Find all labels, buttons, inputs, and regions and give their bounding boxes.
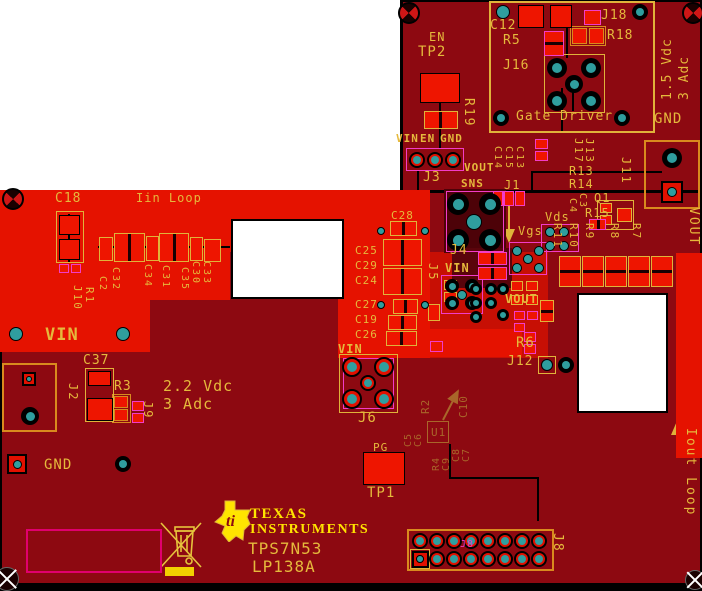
mounting-hole [398, 2, 420, 24]
silk-label: C28 [391, 210, 414, 221]
smd-pad [540, 300, 554, 322]
silk-label: VIN [445, 262, 470, 274]
silk-label: EN [420, 133, 435, 144]
via [116, 327, 130, 341]
through-hole-pad [581, 91, 601, 111]
through-hole-pad [531, 551, 547, 567]
c12-pad-b [550, 5, 572, 28]
through-hole-pad [409, 152, 425, 168]
through-hole-pad [514, 533, 530, 549]
silk-label: R10 [568, 223, 579, 249]
silk-label: J9 [142, 401, 154, 419]
mounting-hole [2, 188, 24, 210]
j10-pad-b [71, 264, 81, 273]
through-hole-pad [470, 297, 482, 309]
silk-label: C25 [355, 245, 378, 256]
pad-hole [379, 362, 389, 372]
silk-label: SNS [461, 178, 484, 189]
pad-hole [535, 537, 543, 545]
silk-label: J2 [67, 383, 79, 401]
c13-body [515, 191, 525, 206]
silk-label: VIN [396, 133, 419, 144]
cap-bank-5 [190, 237, 203, 261]
r3-pad-a [114, 396, 128, 408]
pcb-layout-screenshot: ti TEXAS INSTRUMENTS ENTP2R19VINENGNDJ3V… [0, 0, 702, 591]
r19-body [424, 111, 458, 129]
silk-label: C27 [355, 299, 378, 310]
pad-hole [485, 199, 496, 210]
pad-gap [128, 234, 131, 261]
via [377, 227, 385, 235]
silk-label: C31 [160, 265, 170, 289]
silk-label: J16 [503, 59, 529, 72]
silk-label: GND [44, 458, 72, 472]
pad-gap [401, 316, 404, 329]
silk-label: Vds [545, 211, 570, 223]
j13-body [535, 139, 548, 149]
pad-hole [119, 460, 127, 468]
c18-pad-a [59, 215, 80, 235]
silk-label: C33 [201, 261, 211, 285]
pad-gap [401, 269, 404, 294]
silk-label: Gate Driver [516, 110, 613, 123]
pad-gap [583, 270, 603, 273]
via [377, 301, 385, 309]
silk-label: R6 [516, 336, 535, 350]
through-hole-pad [445, 279, 459, 293]
pad-hole [450, 537, 458, 545]
silk-label: VIN [45, 327, 79, 344]
through-hole-pad [412, 533, 428, 549]
mounting-hole [685, 570, 702, 590]
silk-label: GND [654, 112, 682, 126]
keepout-white-left [231, 219, 344, 299]
c27-body [393, 299, 418, 314]
via [523, 254, 533, 264]
c19-body [388, 315, 417, 330]
through-hole-pad [514, 551, 530, 567]
silk-label: VOUT [505, 293, 538, 305]
through-hole-pad [429, 533, 445, 549]
pad-hole [518, 537, 526, 545]
silk-label: PG [373, 442, 388, 453]
j18-body [584, 10, 601, 25]
smd-pad [526, 281, 538, 291]
pad-hole [485, 235, 496, 246]
silk-label: C35 [179, 267, 189, 291]
silk-label: R9 [584, 223, 595, 240]
through-hole-pad [614, 110, 630, 126]
j10-pad-a [59, 264, 69, 273]
silk-label: J8 [551, 533, 564, 553]
pad-hole [484, 537, 492, 545]
mounting-hole [0, 567, 19, 591]
c18-pad-b [59, 239, 80, 260]
through-hole-pad [374, 357, 394, 377]
pad-hole [26, 412, 35, 421]
via [512, 246, 522, 256]
pad-hole [416, 537, 424, 545]
silk-label: TP1 [367, 486, 395, 500]
via [421, 301, 429, 309]
r7-body [651, 256, 673, 287]
square-pad [7, 454, 27, 474]
silk-label: C37 [83, 354, 109, 367]
pad-hole [433, 555, 441, 563]
c37-pad-a [88, 371, 111, 386]
pad-hole [416, 555, 424, 563]
through-hole-pad [470, 283, 482, 295]
through-hole-pad [463, 551, 479, 567]
pad-hole [473, 300, 479, 306]
via [512, 263, 522, 273]
pad-hole [500, 312, 506, 318]
silk-label: J6 [358, 411, 377, 425]
pad-gap [597, 220, 600, 229]
silk-label: VOUT [464, 162, 495, 173]
silk-label: J11 [620, 157, 632, 185]
silk-label: GND [440, 133, 463, 144]
pad-hole [488, 300, 494, 306]
pad-hole [467, 555, 475, 563]
pad-hole [484, 555, 492, 563]
pad-hole [497, 114, 505, 122]
silk-label: C13 [514, 146, 524, 170]
through-hole-pad [479, 229, 501, 251]
silk-label: R15 [585, 207, 610, 219]
pad-hole [501, 555, 509, 563]
pad-hole [667, 153, 677, 163]
silk-label: C6 [414, 433, 424, 447]
silk-label: C7 [462, 448, 472, 462]
pad-hole [473, 314, 479, 320]
q1-pad-c [617, 208, 632, 222]
through-hole-pad [470, 311, 482, 323]
through-hole-pad [374, 389, 394, 409]
silk-label: C34 [142, 264, 152, 288]
through-hole-pad [427, 152, 443, 168]
silk-label: C24 [355, 275, 378, 286]
label-area-outline [26, 529, 162, 573]
silk-label: C30 [190, 261, 200, 285]
silk-label: C14 [492, 146, 502, 170]
silk-label: J8 [460, 540, 474, 550]
silk-label: C2 [97, 276, 107, 292]
cap-bank-6 [204, 239, 221, 262]
silk-label: C32 [110, 267, 120, 291]
pad-hole [433, 537, 441, 545]
pad-gap [173, 234, 176, 261]
ic-pad-row-a [478, 252, 507, 265]
through-hole-pad [21, 407, 39, 425]
pad-hole [347, 362, 357, 372]
pad-gap [491, 253, 494, 264]
pad-hole [570, 80, 579, 89]
through-hole-pad [497, 551, 513, 567]
r10-body [582, 256, 604, 287]
c15-body [504, 191, 514, 206]
silk-label: 3 Adc [163, 397, 213, 412]
smd-pad [514, 311, 525, 320]
through-hole-pad [342, 357, 362, 377]
pad-gap [652, 270, 672, 273]
generated-board-layers: ENTP2R19VINENGNDJ3VOUTSNSJ1C14C15C13C12R… [0, 0, 702, 591]
silk-label: C19 [355, 314, 378, 325]
r5-body [544, 31, 564, 56]
pad-hole [449, 156, 457, 164]
through-hole-pad [485, 297, 497, 309]
pad-gap [400, 332, 403, 345]
smd-pad [511, 281, 523, 291]
pad-hole [501, 537, 509, 545]
silk-label: TP2 [418, 45, 446, 59]
via [496, 5, 510, 19]
cap-bank-4 [159, 233, 189, 262]
pad-hole [453, 199, 464, 210]
silk-label: R18 [607, 29, 633, 42]
pad-hole [552, 96, 562, 106]
via [534, 263, 544, 273]
pad-hole [518, 555, 526, 563]
pad-gap [402, 222, 405, 235]
pad-hole [449, 283, 456, 290]
pad-hole [413, 156, 421, 164]
silk-label: TPS7N53 [248, 541, 322, 557]
r3-pad-b [114, 409, 128, 421]
pad-hole [618, 114, 626, 122]
silk-label: Iin Loop [136, 192, 202, 204]
via [421, 227, 429, 235]
r8-body [628, 256, 650, 287]
through-hole-pad [445, 152, 461, 168]
pad-hole [562, 361, 570, 369]
silk-label: C10 [458, 395, 469, 418]
silk-label: R13 [569, 165, 594, 177]
trace [449, 477, 539, 479]
silk-label: J10 [72, 285, 83, 311]
smd-pad [428, 304, 440, 321]
silk-label: R3 [114, 380, 132, 393]
smd-pad [430, 341, 443, 352]
silk-label: R7 [631, 223, 642, 240]
through-hole-pad [446, 551, 462, 567]
pad-hole [488, 286, 494, 292]
pad-hole [431, 156, 439, 164]
through-hole-pad [497, 533, 513, 549]
silk-label: R1 [84, 287, 95, 304]
through-hole-pad [497, 309, 509, 321]
c12-pad-a [518, 5, 544, 28]
through-hole-pad [662, 148, 682, 168]
pad-hole [379, 394, 389, 404]
silk-label: C18 [55, 192, 81, 205]
trace [417, 170, 419, 190]
silk-label: R19 [462, 98, 475, 127]
through-hole-pad [115, 456, 131, 472]
pad-hole [364, 379, 372, 387]
silk-label: EN [429, 31, 445, 43]
square-pad [412, 551, 429, 568]
pad-hole [586, 96, 596, 106]
keepout-white-right [577, 293, 668, 413]
through-hole-pad [558, 357, 574, 373]
c26-body [386, 331, 417, 346]
through-hole-pad [342, 389, 362, 409]
square-pad [22, 372, 36, 386]
silk-label: VIN [338, 343, 363, 355]
pad-gap [439, 112, 442, 128]
silk-label: Iout Loop [684, 428, 697, 516]
trace [531, 171, 662, 173]
silk-label: J13 [584, 138, 595, 164]
through-hole-pad [479, 193, 501, 215]
pad-gap [541, 310, 553, 313]
through-hole-pad [581, 58, 601, 78]
pad-hole [535, 555, 543, 563]
silk-label: 1.5 Vdc [661, 38, 674, 100]
c25-body [383, 239, 422, 266]
through-hole-pad [447, 193, 469, 215]
ic-pad-row-b [478, 267, 507, 280]
silk-label: 3 Adc [678, 56, 691, 100]
mounting-hole [682, 2, 702, 24]
silk-label: J17 [573, 138, 584, 164]
silk-label: R2 [420, 399, 431, 414]
through-hole-pad [445, 296, 459, 310]
pad-gap [545, 42, 563, 45]
smd-pad [514, 323, 525, 332]
pad-hole [473, 286, 479, 292]
tp2-pad [420, 73, 460, 103]
silk-label: 2.2 Vdc [163, 379, 233, 394]
through-hole-pad [429, 551, 445, 567]
c28-body [390, 221, 417, 236]
silk-label: LP138A [252, 559, 316, 575]
through-hole-pad [480, 533, 496, 549]
silk-label: R5 [503, 34, 521, 47]
silk-label: U1 [431, 427, 446, 438]
smd-pad [527, 311, 538, 320]
cap-bank-3 [146, 236, 159, 261]
through-hole-pad [360, 375, 376, 391]
through-hole-pad [547, 58, 567, 78]
via [9, 327, 23, 341]
silk-label: J5 [427, 263, 439, 281]
silk-label: Q1 [594, 192, 610, 204]
pad-hole [26, 376, 32, 382]
r11-body [559, 256, 581, 287]
r9-body [605, 256, 627, 287]
r18-pad-a [572, 28, 587, 44]
via [466, 214, 482, 230]
via [534, 246, 544, 256]
through-hole-pad [485, 283, 497, 295]
through-hole-pad [632, 4, 648, 20]
j17-body [535, 151, 548, 161]
silk-label: C29 [355, 260, 378, 271]
via [541, 359, 553, 371]
through-hole-pad [565, 75, 583, 93]
through-hole-pad [531, 533, 547, 549]
pad-hole [667, 187, 677, 197]
silk-label: J1 [504, 179, 520, 191]
silk-label: R11 [552, 223, 563, 249]
pad-hole [636, 8, 644, 16]
tp1-pad [363, 452, 405, 485]
pad-gap [606, 270, 626, 273]
cap-bank-1 [99, 237, 113, 261]
c37-pad-b [87, 398, 113, 421]
via [457, 290, 467, 300]
silk-label: Vgs [518, 225, 543, 237]
pad-gap [491, 268, 494, 279]
pad-gap [560, 270, 580, 273]
c24-body [383, 268, 422, 295]
pad-gap [404, 300, 407, 313]
silk-label: J4 [450, 244, 468, 257]
pad-hole [13, 460, 22, 469]
pad-hole [450, 555, 458, 563]
silk-label: J18 [601, 9, 627, 22]
silk-label: C26 [355, 329, 378, 340]
cap-bank-2 [114, 233, 145, 262]
silk-label: J3 [423, 171, 441, 184]
trace [537, 477, 539, 521]
trace [531, 171, 533, 190]
through-hole-pad [480, 551, 496, 567]
through-hole-pad [493, 110, 509, 126]
pad-hole [449, 300, 456, 307]
silk-label: C12 [490, 19, 516, 32]
silk-label: VOUT [687, 207, 700, 246]
silk-label: R8 [609, 223, 620, 240]
silk-label: R14 [569, 178, 594, 190]
pad-hole [586, 63, 596, 73]
pad-hole [552, 63, 562, 73]
pad-hole [347, 394, 357, 404]
silk-label: C15 [503, 146, 513, 170]
square-pad [661, 181, 683, 203]
through-hole-pad [547, 91, 567, 111]
pad-gap [629, 270, 649, 273]
pad-gap [401, 240, 404, 265]
silk-label: J12 [507, 355, 533, 368]
r18-pad-b [589, 28, 604, 44]
